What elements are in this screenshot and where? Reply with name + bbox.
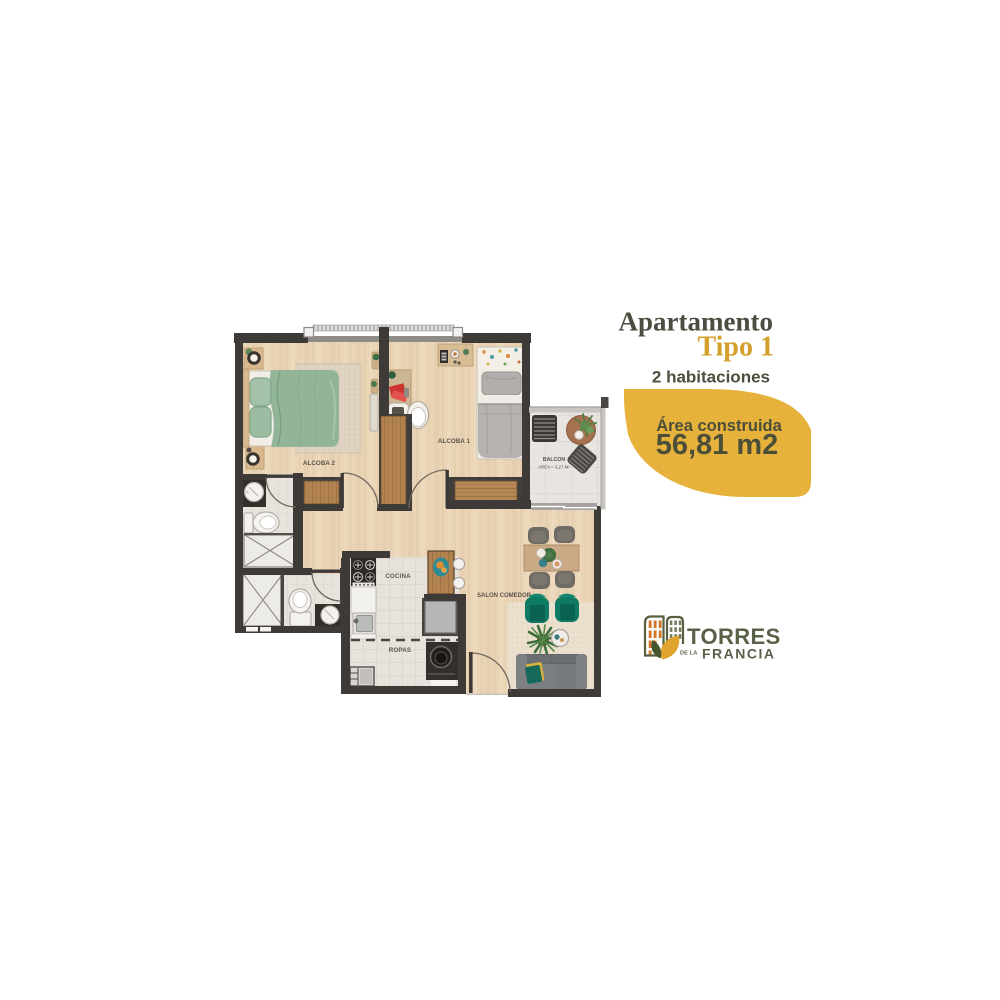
svg-text:ALCOBA 1: ALCOBA 1 [438, 438, 471, 445]
svg-text:BALCON: BALCON [543, 457, 565, 463]
svg-text:Tipo 1: Tipo 1 [697, 332, 774, 363]
svg-text:ROPAS: ROPAS [389, 647, 412, 654]
svg-text:AREA = 3,27 M²: AREA = 3,27 M² [538, 465, 570, 470]
svg-text:2 habitaciones: 2 habitaciones [652, 368, 770, 387]
svg-text:FRANCIA: FRANCIA [702, 646, 776, 662]
svg-text:SALON COMEDOR: SALON COMEDOR [477, 593, 532, 599]
svg-text:56,81 m2: 56,81 m2 [656, 429, 779, 461]
svg-text:COCINA: COCINA [385, 573, 411, 580]
svg-text:DE LA: DE LA [680, 651, 698, 657]
svg-text:ALCOBA 2: ALCOBA 2 [303, 460, 336, 467]
